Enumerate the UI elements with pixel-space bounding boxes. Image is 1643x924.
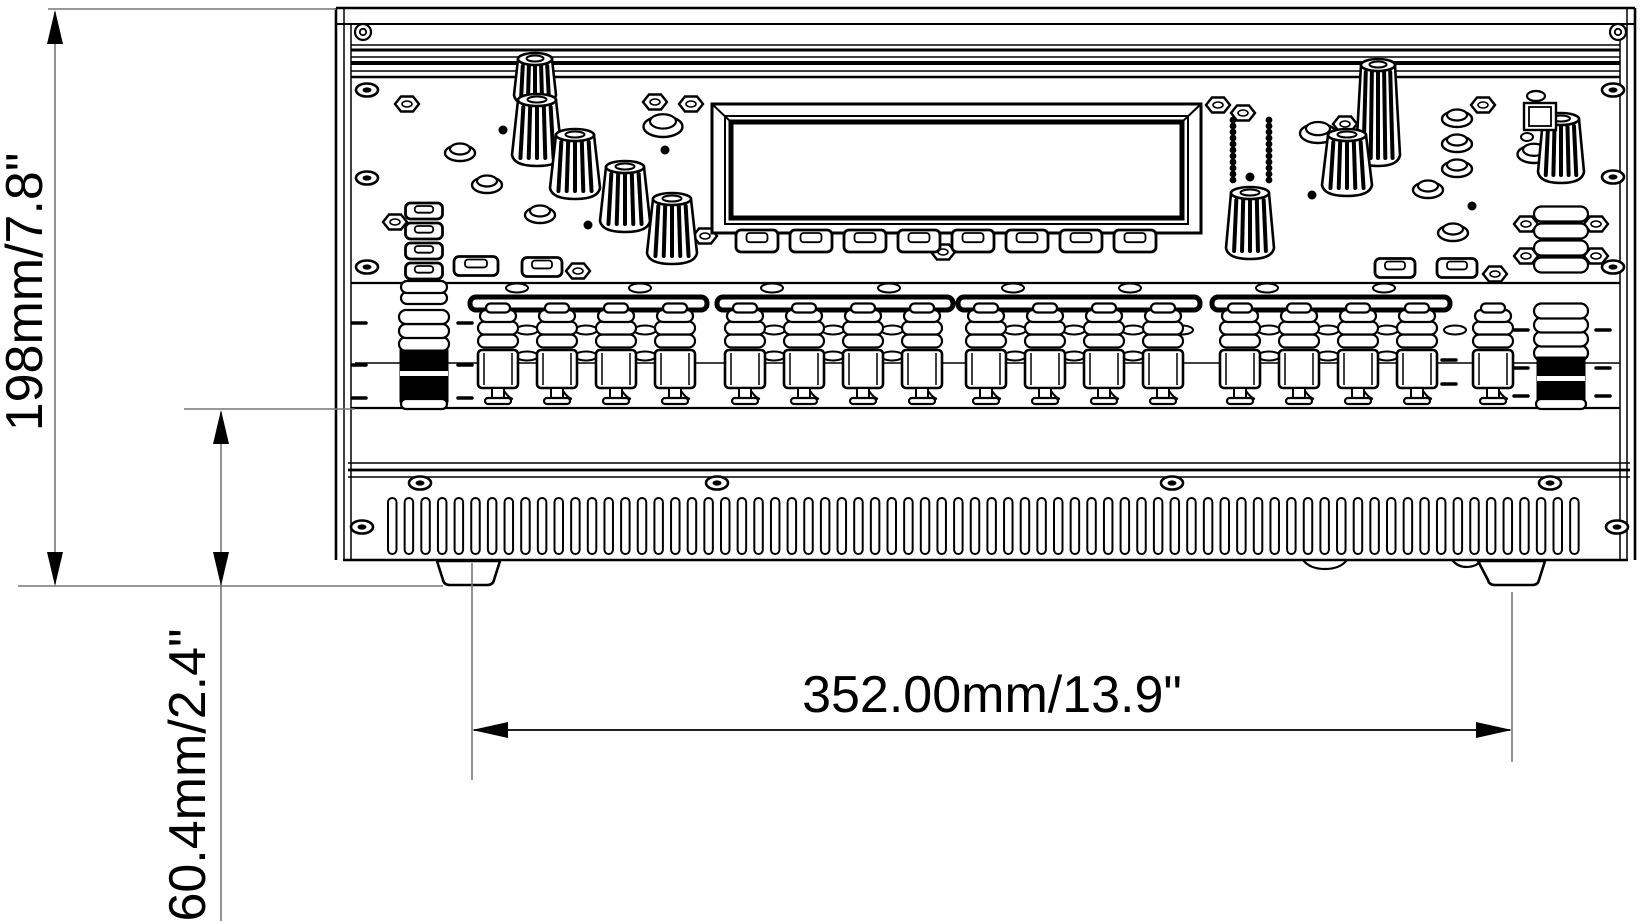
fader-foot xyxy=(1345,398,1371,404)
disc xyxy=(733,304,757,313)
vent-slot xyxy=(1570,498,1579,554)
oval-hole xyxy=(878,284,900,293)
fader-icon xyxy=(478,304,518,405)
vent-slot xyxy=(1254,498,1263,554)
disc xyxy=(545,304,569,313)
knob-icon xyxy=(1226,187,1274,259)
dot-marker xyxy=(499,126,508,135)
disc xyxy=(401,399,447,409)
vent-slot xyxy=(937,498,946,554)
button-icon xyxy=(1060,230,1102,252)
oval-hole xyxy=(1373,284,1395,293)
vent-slot xyxy=(1354,498,1363,554)
oval-hole xyxy=(1444,326,1466,335)
oval-hole xyxy=(1317,352,1339,361)
oval-hole xyxy=(1122,326,1144,335)
fader-icon xyxy=(655,304,695,405)
screw-icon xyxy=(1161,477,1183,490)
disc xyxy=(843,335,883,348)
disc xyxy=(401,281,447,293)
disc xyxy=(486,304,510,313)
disc xyxy=(902,322,942,335)
dome-pad-icon xyxy=(1442,160,1472,178)
dome-pad-icon xyxy=(1442,110,1472,128)
vent-slot xyxy=(987,498,996,554)
vent-slot xyxy=(571,498,580,554)
oval-hole xyxy=(629,284,651,293)
fader-foot xyxy=(1286,398,1312,404)
disc xyxy=(1092,304,1116,313)
vent-slot xyxy=(1537,498,1546,554)
oval-hole xyxy=(761,284,783,293)
disc xyxy=(1084,335,1124,348)
disc xyxy=(399,324,449,338)
vent-slot xyxy=(1154,498,1163,554)
button-icon xyxy=(844,230,886,252)
master-fader-icon xyxy=(1534,304,1588,410)
dot-marker xyxy=(1468,202,1477,211)
fader-icon xyxy=(1143,304,1183,405)
vent-slot xyxy=(1370,498,1379,554)
disc xyxy=(1534,304,1588,319)
arrow-up-icon xyxy=(213,410,229,444)
pad-stack-icon xyxy=(1534,207,1588,273)
screw-icon xyxy=(1602,171,1624,184)
screw-icon xyxy=(355,24,371,40)
vent-slot xyxy=(954,498,963,554)
fader-icon xyxy=(1473,304,1513,405)
screw-icon xyxy=(706,477,728,490)
fader-icon xyxy=(843,304,883,405)
arrow-right-icon xyxy=(1476,722,1512,738)
oval-hole xyxy=(1256,284,1278,293)
vent-slot xyxy=(838,498,847,554)
button-icon xyxy=(790,230,832,252)
vent-slot xyxy=(1387,498,1396,554)
vent-slot xyxy=(654,498,663,554)
disc xyxy=(1279,322,1319,335)
bottom-height-dimension-label: 60.4mm/2.4" xyxy=(159,628,217,921)
drawing-canvas: 198mm/7.8" 60.4mm/2.4" 352.00mm/13.9" xyxy=(0,0,1643,924)
vent-slot xyxy=(1470,498,1479,554)
vent-slot xyxy=(621,498,630,554)
oval-hole xyxy=(575,326,597,335)
vent-slot xyxy=(1404,498,1413,554)
disc xyxy=(1220,335,1260,348)
vent-slot xyxy=(521,498,530,554)
vent-slot xyxy=(588,498,597,554)
arrow-down-icon xyxy=(213,552,229,586)
disc xyxy=(1143,335,1183,348)
dot-marker xyxy=(661,146,670,155)
master-fader-icon xyxy=(399,281,449,409)
fader-icon xyxy=(1084,304,1124,405)
fader-foot xyxy=(973,398,999,404)
dome-pad-icon xyxy=(1438,224,1468,242)
vent-section xyxy=(351,477,1628,586)
vent-slot xyxy=(1237,498,1246,554)
vent-slot xyxy=(1287,498,1296,554)
left-foot xyxy=(437,561,500,585)
screw-icon xyxy=(356,84,378,97)
oval-hole xyxy=(516,326,538,335)
disc xyxy=(655,335,695,348)
dome-pad-icon xyxy=(1413,181,1443,199)
vent-slot xyxy=(871,498,880,554)
disc xyxy=(399,310,449,324)
fader-foot xyxy=(662,398,688,404)
disc xyxy=(910,304,934,313)
fader-icon xyxy=(1338,304,1378,405)
disc xyxy=(596,322,636,335)
button-icon xyxy=(454,257,498,276)
button-icon xyxy=(1437,259,1477,278)
vent-slot xyxy=(438,498,447,554)
dimension-drawing: 198mm/7.8" 60.4mm/2.4" 352.00mm/13.9" xyxy=(0,0,1643,924)
oval-hole xyxy=(1258,326,1280,335)
vent-slot xyxy=(821,498,830,554)
screw-icon xyxy=(1539,477,1561,490)
disc xyxy=(537,322,577,335)
device-front-view xyxy=(336,8,1635,585)
screw-icon xyxy=(351,521,373,534)
disc xyxy=(1287,304,1311,313)
top-control-panel xyxy=(356,53,1624,282)
hex-nut-icon xyxy=(566,264,590,279)
vent-slot xyxy=(671,498,680,554)
fader-icon xyxy=(1220,304,1260,405)
oval-hole xyxy=(1376,326,1398,335)
oval-hole xyxy=(1002,284,1024,293)
knob-icon xyxy=(1322,129,1372,196)
vent-slot xyxy=(555,498,564,554)
dome-pad-icon xyxy=(1442,135,1472,153)
dome-pad-icon xyxy=(472,176,502,194)
vent-slot xyxy=(1037,498,1046,554)
disc xyxy=(1228,304,1252,313)
disc xyxy=(1151,304,1175,313)
fader-icon xyxy=(537,304,577,405)
disc xyxy=(974,304,998,313)
button-icon xyxy=(406,223,443,239)
disc xyxy=(663,304,687,313)
vent-slot xyxy=(405,498,414,554)
vent-slot xyxy=(1221,498,1230,554)
oval-hole xyxy=(763,326,785,335)
width-dimension-label: 352.00mm/13.9" xyxy=(802,666,1182,724)
vent-slot xyxy=(1054,498,1063,554)
fader-foot xyxy=(1404,398,1430,404)
vent-slot xyxy=(1171,498,1180,554)
dome-pad-icon xyxy=(525,206,555,224)
knob-icon xyxy=(600,161,650,232)
arrow-up-icon xyxy=(47,10,63,44)
vent-slot xyxy=(854,498,863,554)
fader-foot xyxy=(909,398,935,404)
fader-section xyxy=(352,281,1610,409)
disc xyxy=(1033,304,1057,313)
fader-foot xyxy=(544,398,570,404)
screw-icon xyxy=(409,477,431,490)
fader-foot xyxy=(603,398,629,404)
vent-slot xyxy=(688,498,697,554)
vent-slot xyxy=(1121,498,1130,554)
vent-slot xyxy=(771,498,780,554)
disc xyxy=(1143,322,1183,335)
fader-foot xyxy=(1091,398,1117,404)
screw-icon xyxy=(1610,24,1626,40)
disc xyxy=(537,335,577,348)
button-icon xyxy=(1375,259,1415,278)
vent-slot xyxy=(1487,498,1496,554)
oval-hole xyxy=(1317,326,1339,335)
vent-slot xyxy=(471,498,480,554)
vent-slot xyxy=(704,498,713,554)
vent-slot xyxy=(1021,498,1029,554)
disc xyxy=(966,335,1006,348)
button-icon xyxy=(522,258,562,277)
vent-slot xyxy=(804,498,813,554)
disc xyxy=(1025,335,1065,348)
oval-hole xyxy=(506,284,528,293)
dome-pad-icon xyxy=(644,114,683,137)
vent-slot xyxy=(921,498,930,554)
screw-icon xyxy=(1606,521,1628,534)
vent-slot xyxy=(1337,498,1346,554)
vent-slot xyxy=(1454,498,1463,554)
vent-slot xyxy=(1504,498,1513,554)
vent-slot xyxy=(888,498,897,554)
vent-slot xyxy=(1004,498,1013,554)
vent-slot xyxy=(455,498,464,554)
vent-slot xyxy=(1204,498,1213,554)
fader-icon xyxy=(596,304,636,405)
disc xyxy=(784,335,824,348)
vent-slot xyxy=(1187,498,1196,554)
oval-hole xyxy=(1258,352,1280,361)
fader-icon xyxy=(1025,304,1065,405)
fader-icon xyxy=(1279,304,1319,405)
vent-slot xyxy=(754,498,763,554)
vent-slot xyxy=(488,498,497,554)
disc xyxy=(902,335,942,348)
fader-foot xyxy=(1480,398,1506,404)
disc xyxy=(851,304,875,313)
vent-slot xyxy=(904,498,913,554)
fader-foot xyxy=(791,398,817,404)
fader-foot xyxy=(732,398,758,404)
fader-icon xyxy=(902,304,942,405)
fader-foot xyxy=(850,398,876,404)
disc xyxy=(1473,335,1513,348)
vent-slot xyxy=(1554,498,1563,554)
disc xyxy=(596,335,636,348)
rear-foot-bump xyxy=(1303,560,1347,569)
screw-icon xyxy=(1602,84,1624,97)
button-icon xyxy=(406,203,443,219)
vent-slot xyxy=(421,498,430,554)
oval-hole xyxy=(1119,284,1141,293)
disc xyxy=(725,322,765,335)
button-icon xyxy=(406,243,443,259)
disc xyxy=(1405,304,1429,313)
right-foot xyxy=(1478,561,1545,585)
disc xyxy=(792,304,816,313)
hex-nut-icon xyxy=(1471,98,1495,113)
oval-hole xyxy=(881,326,903,335)
button-icon xyxy=(1006,230,1048,252)
disc xyxy=(1536,399,1586,409)
hex-nut-icon xyxy=(1483,267,1507,282)
disc xyxy=(725,335,765,348)
button-icon xyxy=(1114,230,1156,252)
disc xyxy=(1534,318,1588,333)
disc xyxy=(1084,322,1124,335)
button-icon xyxy=(736,230,778,252)
screw-icon xyxy=(356,261,378,274)
disc xyxy=(478,335,518,348)
oval-hole xyxy=(1063,326,1085,335)
fader-icon xyxy=(784,304,824,405)
vent-slot xyxy=(1320,498,1329,554)
vent-slot xyxy=(604,498,613,554)
vent-slot xyxy=(1071,498,1080,554)
disc xyxy=(1534,241,1588,256)
disc xyxy=(1397,335,1437,348)
vent-slot xyxy=(1520,498,1529,554)
oval-hole xyxy=(1376,352,1398,361)
disc xyxy=(784,322,824,335)
disc xyxy=(1220,322,1260,335)
disc xyxy=(1473,322,1513,335)
vent-slot xyxy=(1420,498,1429,554)
arrow-left-icon xyxy=(472,722,508,738)
dot-marker xyxy=(1308,191,1317,200)
disc xyxy=(1534,258,1588,273)
disc xyxy=(1534,224,1588,239)
hex-nut-icon xyxy=(679,97,703,112)
screw-icon xyxy=(1602,261,1624,274)
disc xyxy=(1338,335,1378,348)
hex-nut-icon xyxy=(643,95,667,110)
hex-nut-icon xyxy=(395,97,419,112)
height-dimension-label: 198mm/7.8" xyxy=(0,153,54,432)
oval-hole xyxy=(1122,352,1144,361)
fader-foot xyxy=(485,398,511,404)
dot-marker xyxy=(584,221,593,230)
vent-slot xyxy=(788,498,797,554)
oval-hole xyxy=(634,326,656,335)
arrow-down-icon xyxy=(47,552,63,586)
fader-foot xyxy=(1227,398,1253,404)
oval-hole xyxy=(1004,326,1026,335)
disc xyxy=(1338,322,1378,335)
disc xyxy=(1534,207,1588,222)
disc xyxy=(1279,335,1319,348)
vent-slot xyxy=(505,498,514,554)
disc xyxy=(843,322,883,335)
disc xyxy=(1397,322,1437,335)
fader-icon xyxy=(966,304,1006,405)
button-icon xyxy=(406,263,443,279)
screw-icon xyxy=(356,172,378,185)
disc xyxy=(604,304,628,313)
disc xyxy=(1481,304,1505,313)
vent-slot xyxy=(1437,498,1446,554)
button-icon xyxy=(952,230,994,252)
disc xyxy=(966,322,1006,335)
disc xyxy=(655,322,695,335)
vent-slot xyxy=(1304,498,1313,554)
knob-icon xyxy=(647,193,697,264)
fader-foot xyxy=(1150,398,1176,404)
dot-marker xyxy=(1246,173,1255,182)
fader-icon xyxy=(725,304,765,405)
vent-slot xyxy=(388,498,397,554)
hex-nut-icon xyxy=(383,215,407,230)
hex-nut-icon xyxy=(1206,98,1230,113)
fader-icon xyxy=(1397,304,1437,405)
disc xyxy=(1346,304,1370,313)
disc xyxy=(1025,322,1065,335)
button-icon xyxy=(898,230,940,252)
disc xyxy=(1534,332,1588,347)
vent-slot xyxy=(971,498,980,554)
oval-hole xyxy=(822,326,844,335)
vent-slot xyxy=(538,498,547,554)
knob-icon xyxy=(550,129,600,199)
fader-foot xyxy=(1032,398,1058,404)
display-screen xyxy=(712,104,1201,233)
vent-slot xyxy=(638,498,647,554)
vent-slot xyxy=(1270,498,1279,554)
vent-slot xyxy=(1104,498,1113,554)
dome-pad-icon xyxy=(445,144,475,162)
disc xyxy=(478,322,518,335)
vent-slot xyxy=(721,498,730,554)
vent-slot xyxy=(1087,498,1096,554)
vent-slot xyxy=(738,498,747,554)
vent-slot xyxy=(1137,498,1146,554)
